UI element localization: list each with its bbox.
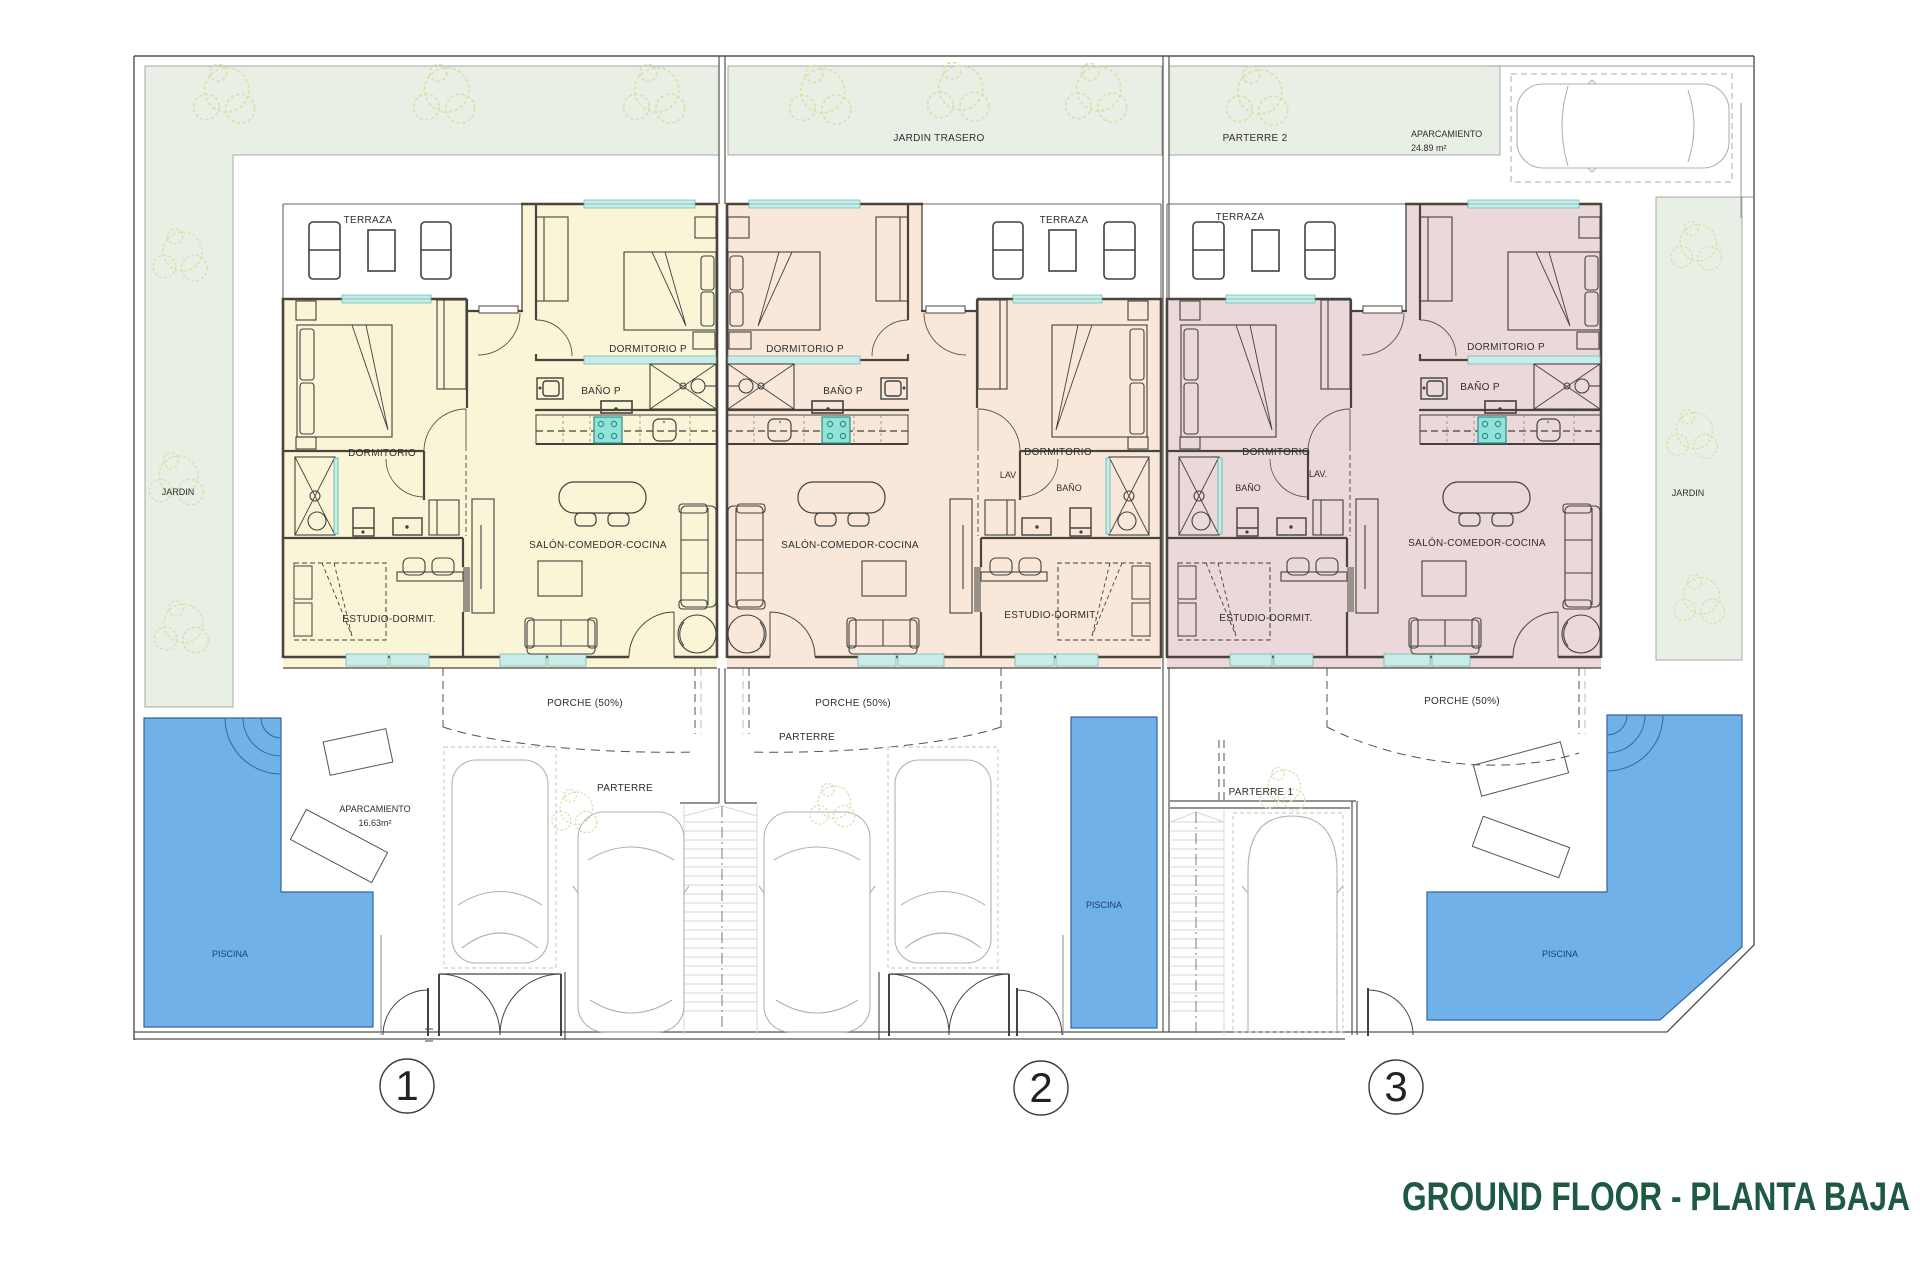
svg-text:PARTERRE: PARTERRE — [779, 732, 835, 743]
svg-text:TERRAZA: TERRAZA — [344, 215, 393, 226]
svg-text:LAV.: LAV. — [1309, 469, 1327, 479]
svg-text:PISCINA: PISCINA — [1086, 900, 1122, 910]
svg-text:PARTERRE 2: PARTERRE 2 — [1223, 133, 1288, 144]
svg-text:ESTUDIO-DORMIT.: ESTUDIO-DORMIT. — [1004, 610, 1097, 621]
svg-text:TERRAZA: TERRAZA — [1216, 212, 1265, 223]
svg-text:PORCHE (50%): PORCHE (50%) — [1424, 696, 1500, 707]
svg-text:16.63m²: 16.63m² — [358, 818, 391, 828]
svg-text:GROUND FLOOR - PLANTA BAJA: GROUND FLOOR - PLANTA BAJA — [1402, 1175, 1910, 1219]
svg-text:DORMITORIO: DORMITORIO — [1242, 447, 1310, 458]
svg-text:BAÑO P: BAÑO P — [823, 384, 863, 397]
svg-text:PORCHE (50%): PORCHE (50%) — [815, 698, 891, 709]
svg-text:2: 2 — [1029, 1064, 1052, 1111]
svg-text:PARTERRE: PARTERRE — [597, 783, 653, 794]
svg-text:ESTUDIO-DORMIT.: ESTUDIO-DORMIT. — [1219, 613, 1312, 624]
svg-text:SALÓN-COMEDOR-COCINA: SALÓN-COMEDOR-COCINA — [781, 538, 919, 551]
svg-text:APARCAMIENTO: APARCAMIENTO — [1411, 129, 1482, 139]
svg-text:DORMITORIO P: DORMITORIO P — [609, 344, 687, 355]
svg-text:TERRAZA: TERRAZA — [1040, 215, 1089, 226]
svg-text:JARDIN: JARDIN — [162, 487, 195, 497]
svg-text:BAÑO: BAÑO — [1235, 483, 1261, 493]
svg-text:BAÑO: BAÑO — [1056, 483, 1082, 493]
svg-text:DORMITORIO: DORMITORIO — [348, 448, 416, 459]
svg-text:JARDIN: JARDIN — [1672, 488, 1705, 498]
svg-text:PISCINA: PISCINA — [1542, 949, 1578, 959]
svg-text:LAV: LAV — [1000, 470, 1016, 480]
svg-text:DORMITORIO: DORMITORIO — [1024, 447, 1092, 458]
svg-text:24.89 m²: 24.89 m² — [1411, 143, 1447, 153]
svg-text:SALÓN-COMEDOR-COCINA: SALÓN-COMEDOR-COCINA — [1408, 536, 1546, 549]
svg-text:DORMITORIO P: DORMITORIO P — [1467, 342, 1545, 353]
svg-text:APARCAMIENTO: APARCAMIENTO — [339, 804, 410, 814]
svg-text:JARDIN TRASERO: JARDIN TRASERO — [893, 133, 984, 144]
svg-text:PISCINA: PISCINA — [212, 949, 248, 959]
svg-text:1: 1 — [395, 1062, 418, 1109]
svg-text:DORMITORIO P: DORMITORIO P — [766, 344, 844, 355]
svg-text:BAÑO P: BAÑO P — [581, 384, 621, 397]
svg-text:BAÑO P: BAÑO P — [1460, 380, 1500, 393]
svg-text:ESTUDIO-DORMIT.: ESTUDIO-DORMIT. — [342, 614, 435, 625]
svg-text:3: 3 — [1384, 1063, 1407, 1110]
svg-text:PORCHE (50%): PORCHE (50%) — [547, 698, 623, 709]
svg-text:SALÓN-COMEDOR-COCINA: SALÓN-COMEDOR-COCINA — [529, 538, 667, 551]
svg-text:PARTERRE 1: PARTERRE 1 — [1229, 787, 1294, 798]
